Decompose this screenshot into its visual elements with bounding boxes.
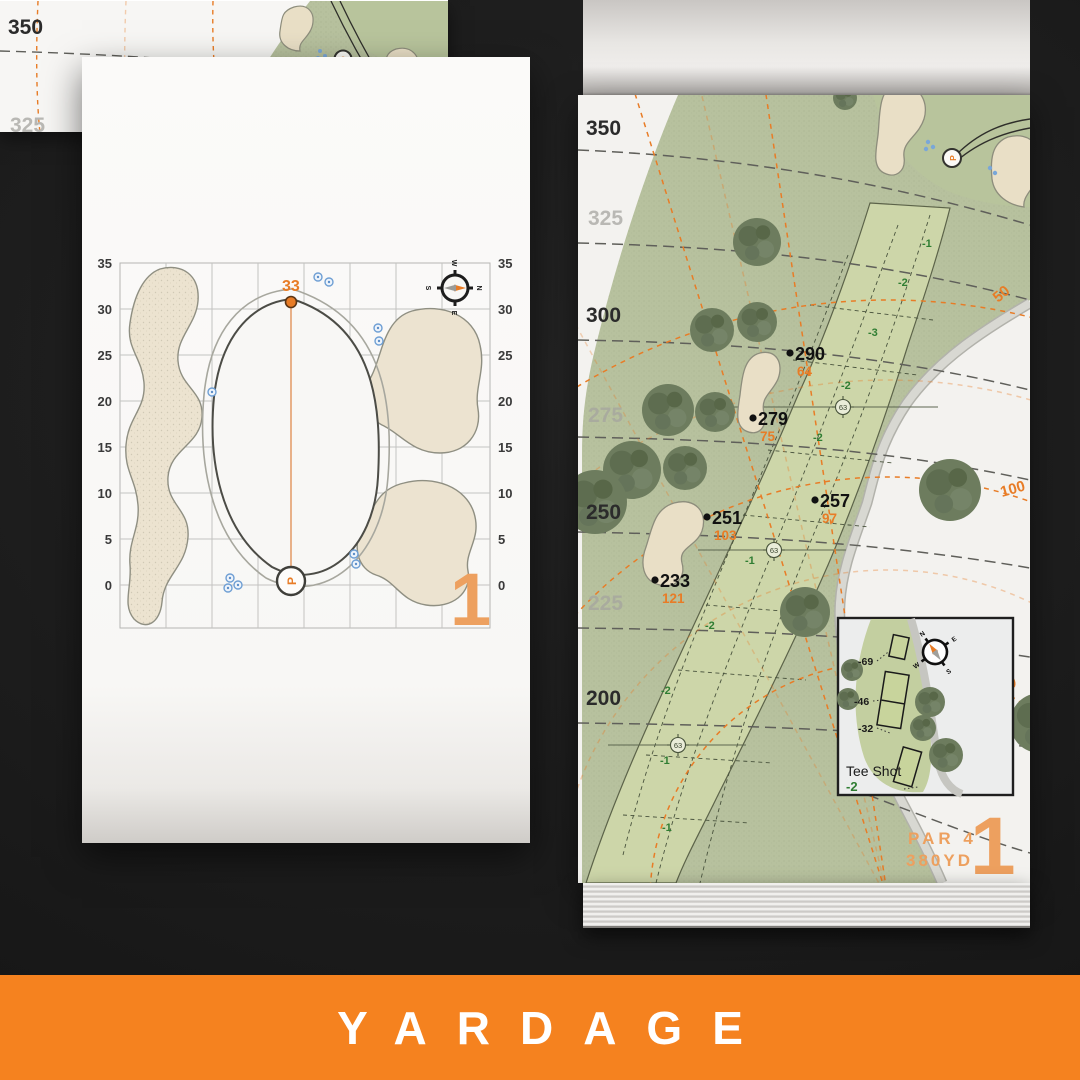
bunker-texture bbox=[126, 267, 202, 624]
hole-map-page: P 63 63 bbox=[578, 95, 1030, 883]
marker-dist: 233 bbox=[660, 571, 690, 591]
marker-dist: 279 bbox=[758, 409, 788, 429]
poster-stage: 35 30 25 20 15 10 5 0 35 30 25 20 15 10 … bbox=[0, 0, 1080, 1080]
tick-25-r: 25 bbox=[498, 348, 512, 363]
tick-35-l: 35 bbox=[98, 256, 112, 271]
hole-map: P 63 63 bbox=[578, 95, 1030, 883]
back-edge-dot bbox=[286, 297, 297, 308]
green-pin-symbol: P bbox=[948, 155, 958, 161]
tick-30-l: 30 bbox=[98, 302, 112, 317]
marker-carry: 97 bbox=[822, 511, 837, 526]
title-banner: YARDAGE bbox=[0, 975, 1080, 1080]
partial-tick-325: 325 bbox=[10, 114, 45, 133]
slope: -1 bbox=[662, 822, 672, 834]
green-surface bbox=[213, 299, 379, 575]
compass-w: W bbox=[450, 260, 457, 267]
bunker-right-top bbox=[367, 309, 482, 453]
banner-title: YARDAGE bbox=[307, 1001, 773, 1055]
slope: -1 bbox=[745, 555, 755, 567]
tick-300: 300 bbox=[586, 304, 621, 327]
tick-0-l: 0 bbox=[105, 578, 112, 593]
axis-ticks-right: 35 30 25 20 15 10 5 0 bbox=[498, 256, 512, 593]
par-label: PAR 4 bbox=[908, 829, 977, 848]
marker-dist: 257 bbox=[820, 491, 850, 511]
tick-250: 250 bbox=[586, 501, 621, 524]
slope: -1 bbox=[922, 238, 932, 250]
tick-15-l: 15 bbox=[98, 440, 112, 455]
tick-225: 225 bbox=[588, 592, 623, 615]
tee-carry: -69 bbox=[858, 656, 873, 668]
marker-carry: 64 bbox=[797, 364, 813, 379]
tee-carry: -32 bbox=[858, 723, 873, 735]
tick-275: 275 bbox=[588, 404, 623, 427]
flipped-page-curl bbox=[583, 0, 1030, 95]
slope: -2 bbox=[841, 380, 851, 392]
compass-n: N bbox=[475, 285, 482, 290]
tick-35-r: 35 bbox=[498, 256, 512, 271]
tick-10-l: 10 bbox=[98, 486, 112, 501]
tick-200: 200 bbox=[586, 687, 621, 710]
tick-350: 350 bbox=[586, 117, 621, 140]
slope: -3 bbox=[868, 327, 878, 339]
compass-s: S bbox=[424, 286, 431, 291]
marker-carry: 121 bbox=[662, 591, 685, 606]
compass-e: E bbox=[450, 311, 457, 316]
tick-10-r: 10 bbox=[498, 486, 512, 501]
page-stack-edge bbox=[583, 883, 1030, 928]
sprinkler-63-value: 63 bbox=[770, 546, 778, 555]
pin-depth-value: 33 bbox=[282, 278, 300, 295]
green-detail-page: 35 30 25 20 15 10 5 0 35 30 25 20 15 10 … bbox=[82, 57, 530, 843]
slope: -2 bbox=[898, 277, 908, 289]
hole-number-right: 1 bbox=[970, 801, 1016, 883]
tick-325: 325 bbox=[588, 207, 623, 230]
tee-shot-title: Tee Shot bbox=[846, 763, 901, 779]
sprinkler-63-value: 63 bbox=[674, 741, 682, 750]
marker-dist: 251 bbox=[712, 508, 742, 528]
slope: -2 bbox=[705, 620, 715, 632]
tick-5-l: 5 bbox=[105, 532, 112, 547]
sprinkler-63-value: 63 bbox=[839, 403, 847, 412]
slope: -2 bbox=[661, 685, 671, 697]
tick-5-r: 5 bbox=[498, 532, 505, 547]
slope: -1 bbox=[660, 755, 670, 767]
green-detail-map: 35 30 25 20 15 10 5 0 35 30 25 20 15 10 … bbox=[82, 57, 530, 843]
partial-tick-350: 350 bbox=[8, 16, 43, 39]
tee-shot-inset: -69 -46 -32 Tee Shot -2 bbox=[837, 617, 1013, 795]
marker-dist: 290 bbox=[795, 344, 825, 364]
marker-carry: 75 bbox=[760, 429, 776, 444]
axis-ticks-left: 35 30 25 20 15 10 5 0 bbox=[98, 256, 112, 593]
tick-20-l: 20 bbox=[98, 394, 112, 409]
tick-15-r: 15 bbox=[498, 440, 512, 455]
hole-number-left: 1 bbox=[450, 558, 491, 641]
yardage-label: 380YD bbox=[906, 851, 973, 870]
tick-30-r: 30 bbox=[498, 302, 512, 317]
tee-shot-slope: -2 bbox=[846, 779, 858, 794]
tick-0-r: 0 bbox=[498, 578, 505, 593]
marker-carry: 103 bbox=[714, 528, 737, 543]
slope: -2 bbox=[813, 432, 823, 444]
tick-25-l: 25 bbox=[98, 348, 112, 363]
pin-marker-symbol: P bbox=[285, 577, 299, 585]
compass-icon: N E S W bbox=[424, 260, 482, 316]
tee-carry: -46 bbox=[854, 696, 869, 708]
tick-20-r: 20 bbox=[498, 394, 512, 409]
arc-100: 100 bbox=[998, 478, 1027, 501]
